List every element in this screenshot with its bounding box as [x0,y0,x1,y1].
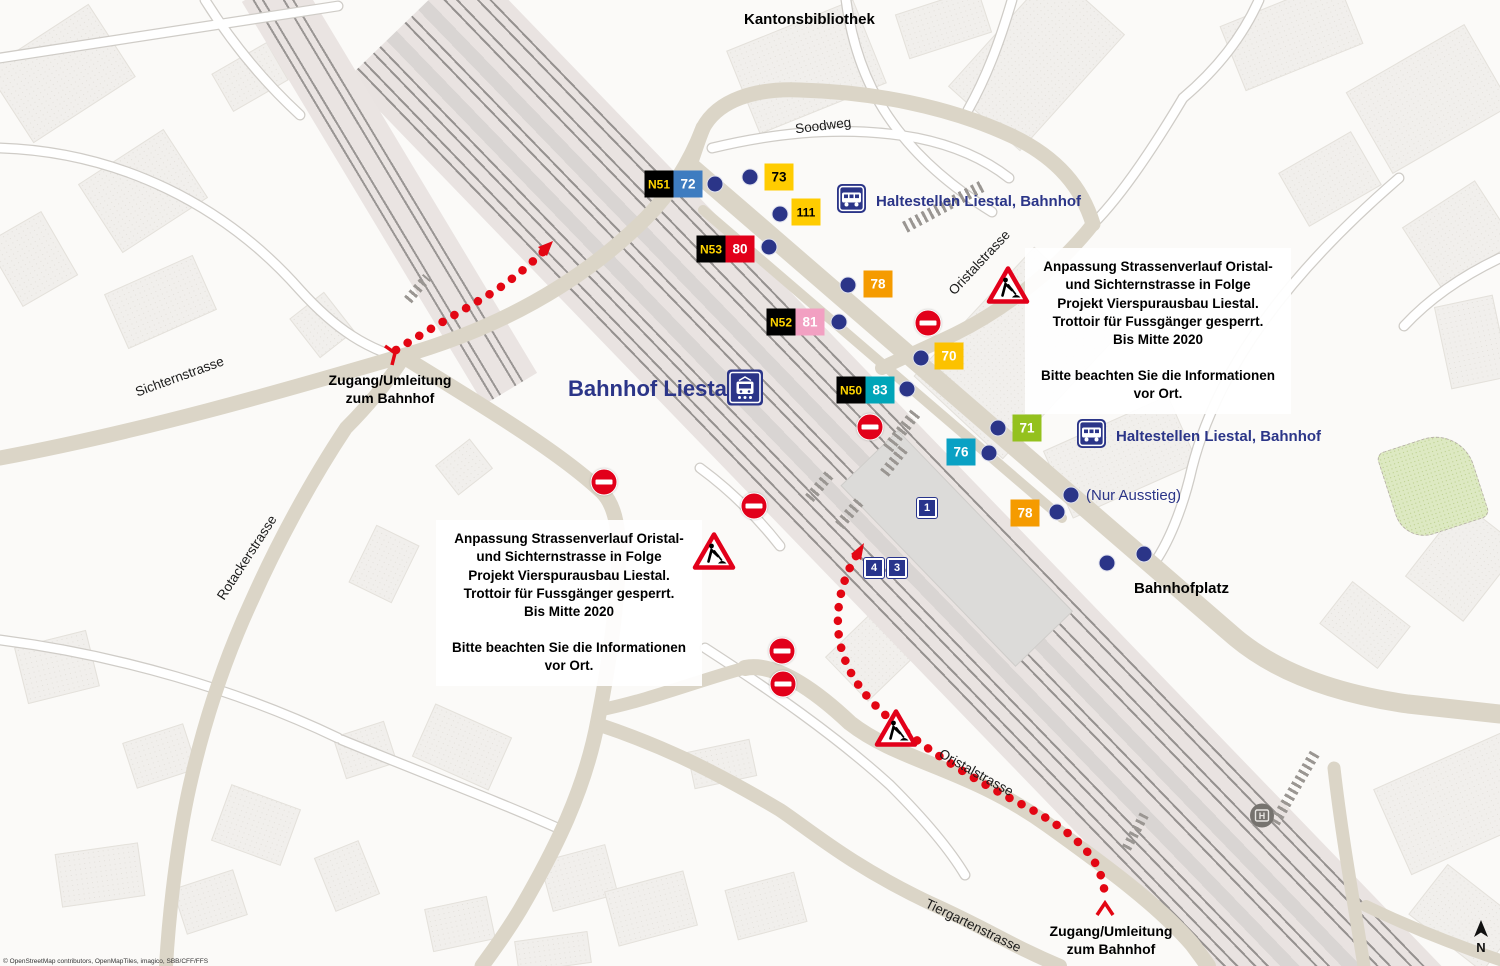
notice-line: Bis Mitte 2020 [1029,331,1287,349]
bus-stop-dot [840,277,857,294]
label-bahnhofplatz: Bahnhofplatz [1134,580,1229,597]
detour-end-chevron [1097,903,1113,915]
station-name: Bahnhof Liestal [568,376,733,402]
stop-list-header-label: Haltestellen Liestal, Bahnhof [1116,428,1321,445]
detour-label-west: Zugang/Umleitungzum Bahnhof [329,371,452,407]
bus-line-badge-70: 70 [935,343,964,370]
roadworks-icon [874,709,918,754]
stop-list-header-south: Haltestellen Liestal, Bahnhof [1076,418,1321,454]
copyright-attribution: © OpenStreetMap contributors, OpenMapTil… [3,958,208,965]
bus-line-badge-81: 81 [796,309,825,336]
notice-line: Projekt Vierspurausbau Liestal. [440,567,698,585]
bus-line-badge-N50: N50 [837,377,866,404]
bus-line-badge-76: 76 [947,439,976,466]
bus-stop-dot [707,176,724,193]
bus-stop-dot [1136,546,1153,563]
detour-route-west [396,247,548,350]
bus-stop-dot [772,206,789,223]
bus-icon [1076,418,1107,454]
no-entry-icon [741,493,768,520]
no-entry-icon [915,310,942,337]
notice-line: Bitte beachten Sie die Informationen [1029,367,1287,385]
bus-line-badge-78: 78 [864,271,893,298]
construction-notice-east: Anpassung Strassenverlauf Oristal-und Si… [1025,248,1291,414]
notice-line: Projekt Vierspurausbau Liestal. [1029,295,1287,313]
label-kantonsbibliothek: Kantonsbibliothek [744,11,875,28]
bus-line-badge-78: 78 [1011,500,1040,527]
notice-line: und Sichternstrasse in Folge [440,548,698,566]
construction-notice-west: Anpassung Strassenverlauf Oristal-und Si… [436,520,702,686]
roadworks-icon [986,266,1030,311]
bus-line-badge-N51: N51 [645,171,674,198]
bus-stop-dot [913,350,930,367]
bus-line-badge-N53: N53 [697,236,726,263]
bus-stop-h-icon: H [1250,803,1275,833]
stop-list-header-label: Haltestellen Liestal, Bahnhof [876,193,1081,210]
stop-list-header-north: Haltestellen Liestal, Bahnhof [836,183,1081,219]
no-entry-icon [770,671,797,698]
no-entry-icon [591,469,618,496]
no-entry-icon [857,414,884,441]
train-station-icon [726,369,764,412]
bus-stop-dot [899,381,916,398]
platform-badge-4: 4 [864,558,884,578]
notice-line: vor Ort. [1029,385,1287,403]
bus-stop-dot [1049,504,1066,521]
bus-line-badge-80: 80 [726,236,755,263]
bus-line-badge-71: 71 [1013,415,1042,442]
bus-stop-dot [1099,555,1116,572]
north-label: N [1468,941,1494,955]
label-nur-ausstieg: (Nur Ausstieg) [1086,487,1181,504]
bus-line-badge-73: 73 [765,164,794,191]
bus-line-badge-72: 72 [674,171,703,198]
bus-stop-dot [742,169,759,186]
notice-line: Bitte beachten Sie die Informationen [440,639,698,657]
bus-line-badge-111: 111 [792,199,821,226]
roadworks-icon [692,532,736,577]
north-arrow-icon: N [1468,920,1494,956]
notice-line: und Sichternstrasse in Folge [1029,276,1287,294]
bus-line-badge-N52: N52 [767,309,796,336]
detour-label-south: Zugang/Umleitungzum Bahnhof [1050,922,1173,958]
notice-line: Trottoir für Fussgänger gesperrt. [1029,313,1287,331]
detour-routes [0,0,1500,966]
bus-stop-dot [761,239,778,256]
bus-line-badge-83: 83 [866,377,895,404]
svg-text:H: H [1259,811,1266,821]
bus-stop-dot [990,420,1007,437]
liestal-station-map: Kantonsbibliothek Soodweg Oristalstrasse… [0,0,1500,966]
notice-line: vor Ort. [440,657,698,675]
bus-icon [836,183,867,219]
platform-badge-1: 1 [917,498,937,518]
no-entry-icon [769,638,796,665]
notice-line: Anpassung Strassenverlauf Oristal- [440,530,698,548]
notice-line: Trottoir für Fussgänger gesperrt. [440,585,698,603]
bus-stop-dot [981,445,998,462]
platform-badge-3: 3 [887,558,907,578]
notice-line: Anpassung Strassenverlauf Oristal- [1029,258,1287,276]
bus-stop-dot [831,314,848,331]
bus-stop-dot [1063,487,1080,504]
notice-line: Bis Mitte 2020 [440,603,698,621]
